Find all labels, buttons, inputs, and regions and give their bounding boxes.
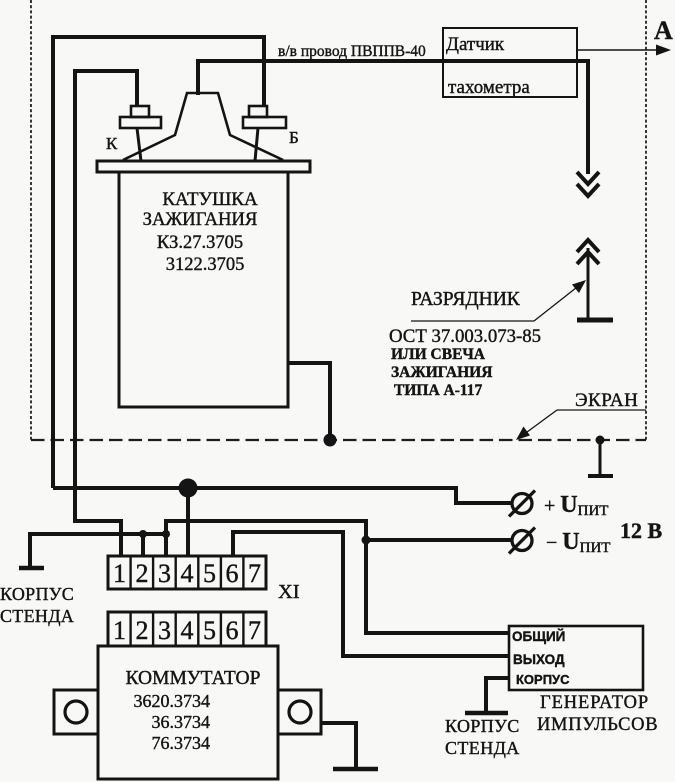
svg-text:ГЕНЕРАТОР: ГЕНЕРАТОР — [540, 693, 649, 713]
svg-text:К: К — [106, 134, 118, 153]
svg-text:5: 5 — [203, 559, 216, 588]
svg-text:Датчик: Датчик — [446, 34, 505, 55]
svg-text:ОСТ 37.003.073-85: ОСТ 37.003.073-85 — [389, 326, 541, 347]
svg-text:12 В: 12 В — [620, 518, 663, 543]
svg-text:1: 1 — [113, 559, 126, 588]
svg-text:в/в провод ПВППВ-40: в/в провод ПВППВ-40 — [278, 43, 426, 60]
svg-text:2: 2 — [136, 559, 149, 588]
svg-text:76.3734: 76.3734 — [152, 733, 211, 753]
svg-text:КОММУТАТОР: КОММУТАТОР — [126, 668, 261, 689]
svg-text:КАТУШКА: КАТУШКА — [162, 189, 258, 210]
svg-text:ИЛИ СВЕЧА: ИЛИ СВЕЧА — [391, 346, 486, 363]
svg-text:КЗ.27.3705: КЗ.27.3705 — [157, 233, 243, 253]
svg-text:3: 3 — [158, 559, 171, 588]
svg-text:6: 6 — [226, 616, 239, 645]
svg-text:ИМПУЛЬСОВ: ИМПУЛЬСОВ — [537, 715, 658, 735]
svg-text:1: 1 — [113, 616, 126, 645]
svg-text:4: 4 — [181, 616, 194, 645]
svg-text:СТЕНДА: СТЕНДА — [0, 606, 74, 626]
svg-text:ЗАЖИГАНИЯ: ЗАЖИГАНИЯ — [143, 209, 258, 230]
svg-text:7: 7 — [248, 559, 261, 588]
svg-text:4: 4 — [181, 559, 194, 588]
svg-text:6: 6 — [226, 559, 239, 588]
svg-text:3: 3 — [158, 616, 171, 645]
svg-text:А: А — [654, 16, 673, 45]
svg-text:3620.3734: 3620.3734 — [134, 691, 211, 711]
svg-text:тахометра: тахометра — [448, 77, 530, 98]
svg-text:КОРПУС: КОРПУС — [0, 584, 74, 604]
svg-text:КОРПУС: КОРПУС — [445, 716, 520, 736]
svg-text:СТЕНДА: СТЕНДА — [445, 738, 520, 758]
svg-text:ЭКРАН: ЭКРАН — [575, 390, 638, 411]
svg-text:3122.3705: 3122.3705 — [166, 255, 245, 275]
svg-text:ТИПА А-117: ТИПА А-117 — [394, 382, 483, 399]
svg-text:ЗАЖИГАНИЯ: ЗАЖИГАНИЯ — [391, 364, 492, 381]
svg-text:7: 7 — [248, 616, 261, 645]
svg-text:36.3734: 36.3734 — [152, 712, 211, 732]
svg-text:XI: XI — [278, 581, 300, 603]
svg-text:Б: Б — [289, 128, 299, 147]
svg-text:РАЗРЯДНИК: РАЗРЯДНИК — [411, 289, 521, 310]
svg-text:КОРПУС: КОРПУС — [516, 672, 570, 687]
svg-text:ВЫХОД: ВЫХОД — [513, 652, 565, 667]
svg-text:ОБЩИЙ: ОБЩИЙ — [512, 629, 565, 644]
svg-text:2: 2 — [136, 616, 149, 645]
svg-text:5: 5 — [203, 616, 216, 645]
